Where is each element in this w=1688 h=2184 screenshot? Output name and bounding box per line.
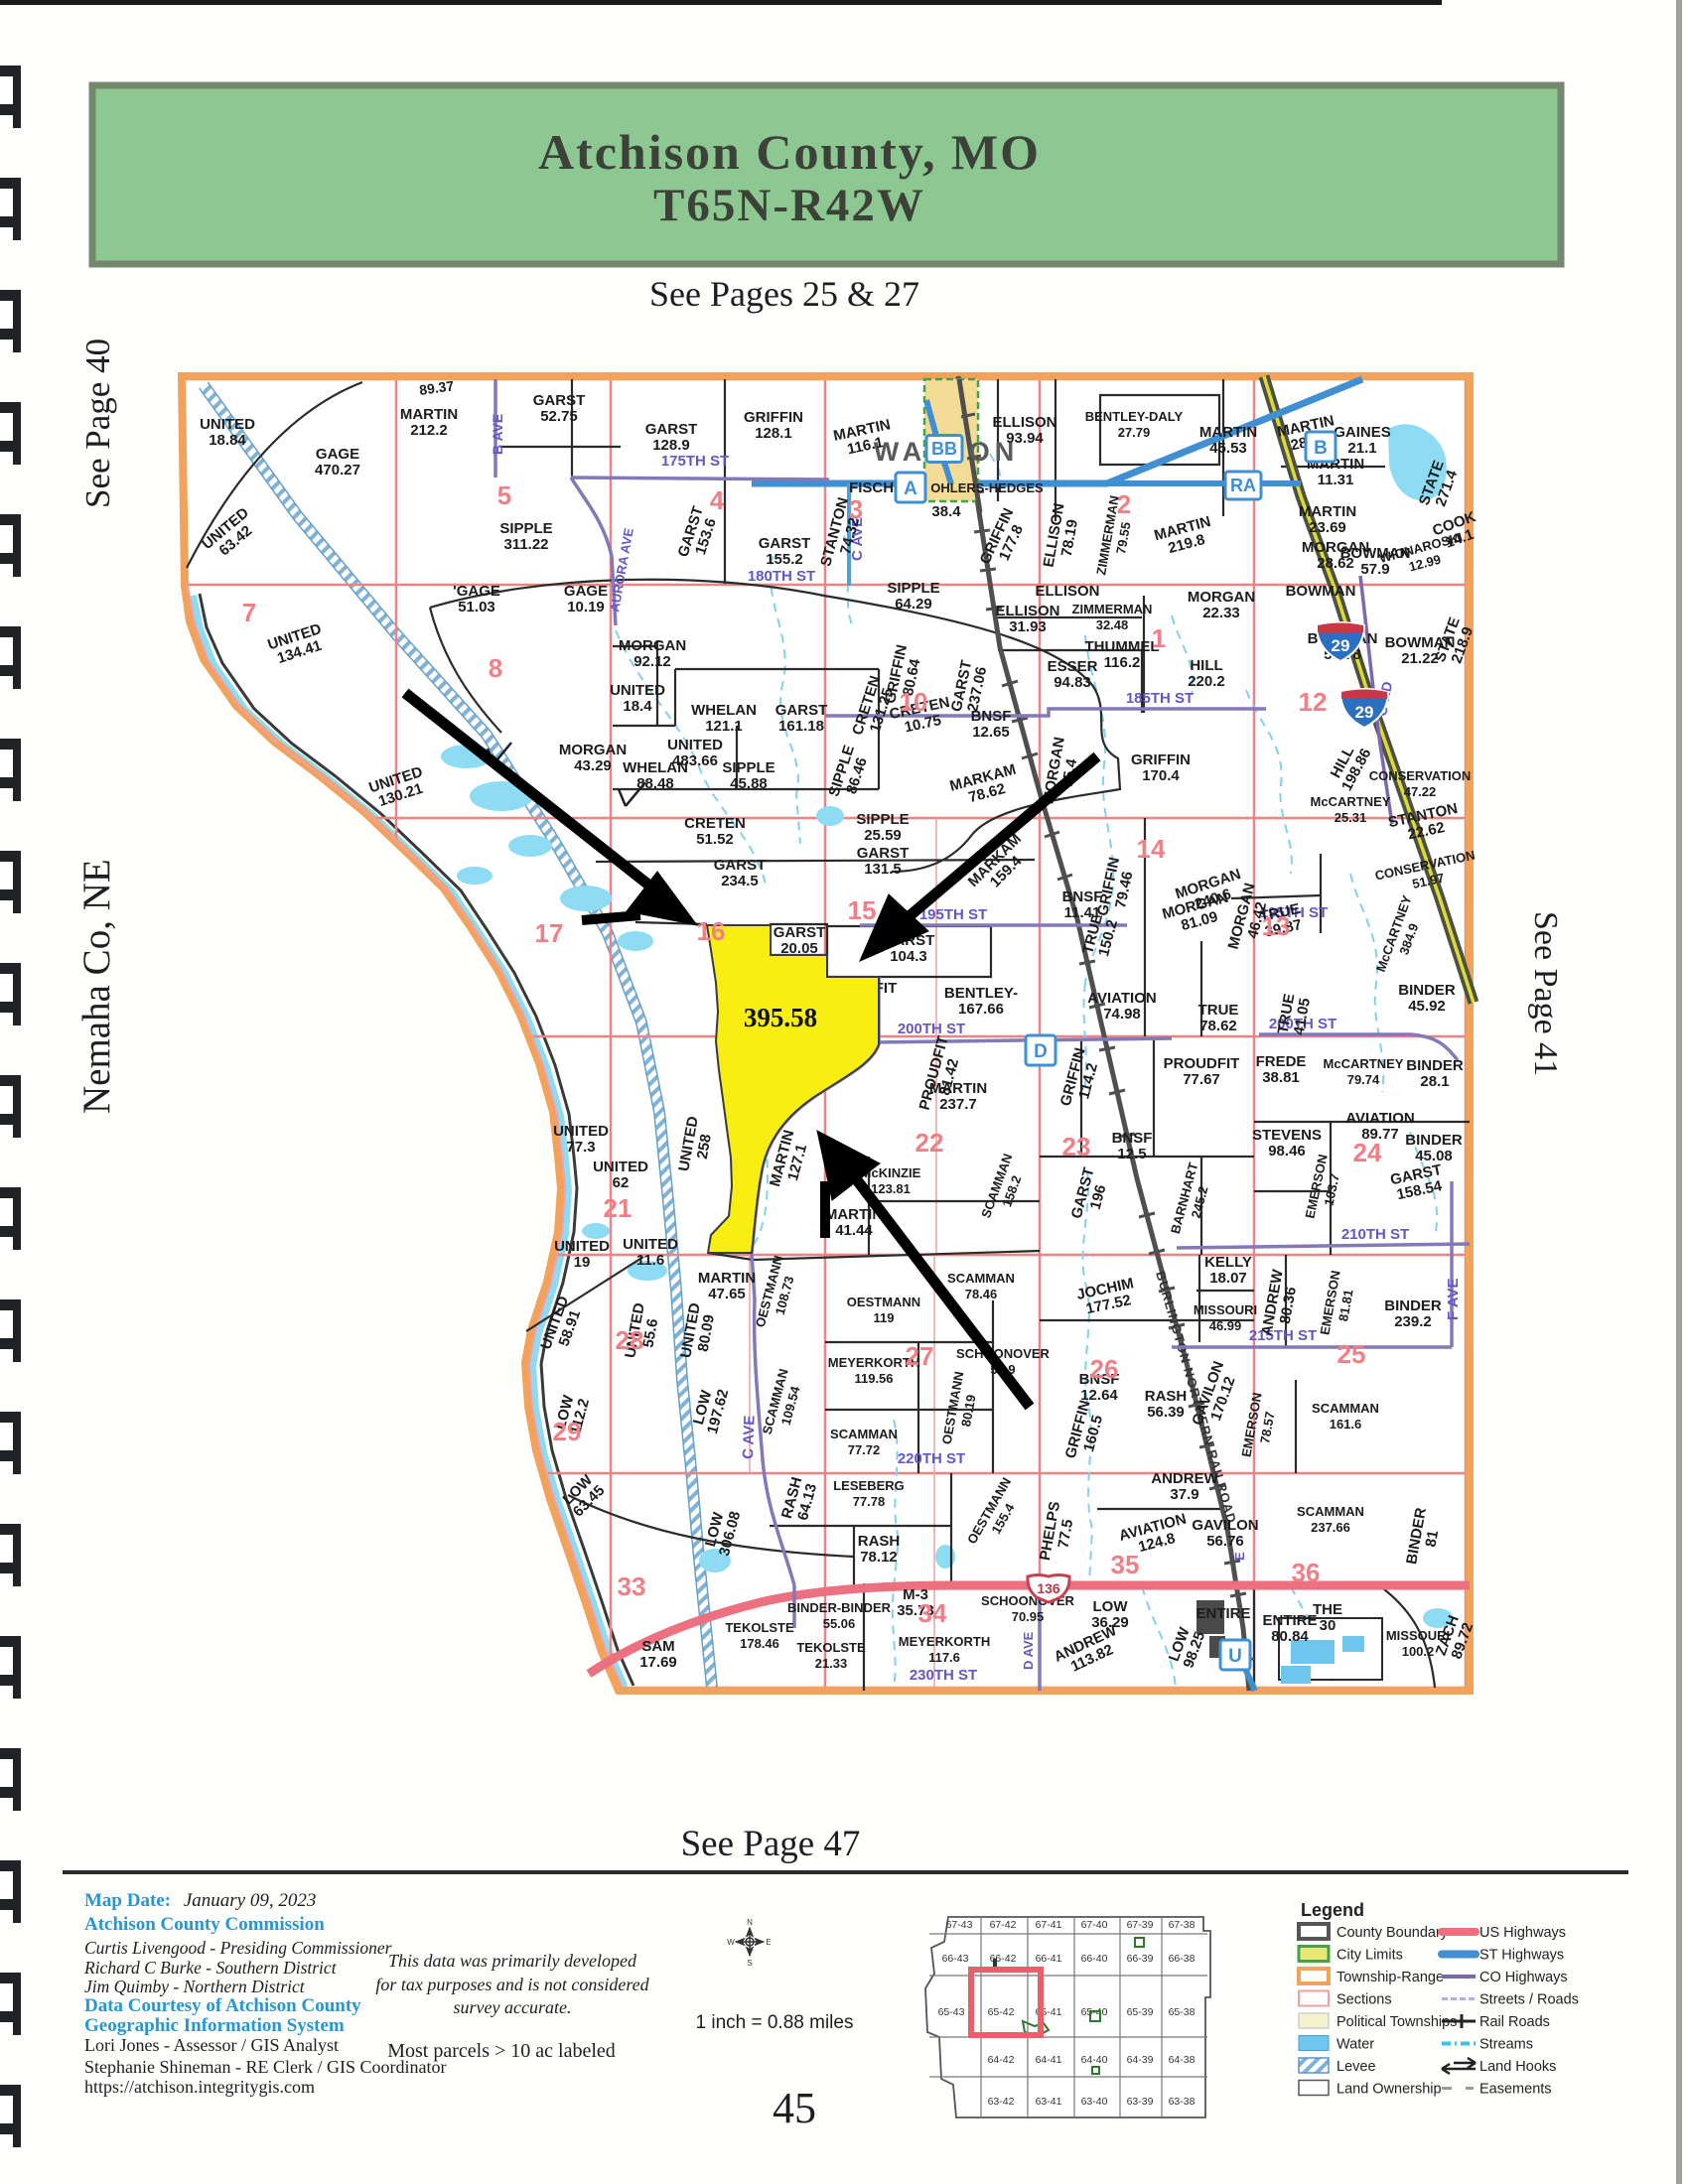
svg-text:64-40: 64-40 bbox=[1081, 2054, 1108, 2066]
svg-text:10: 10 bbox=[900, 687, 928, 717]
svg-text:B: B bbox=[1314, 438, 1328, 459]
svg-text:Water: Water bbox=[1336, 2037, 1374, 2053]
svg-text:'GAGE51.03: 'GAGE51.03 bbox=[453, 583, 500, 615]
svg-text:Land Ownership: Land Ownership bbox=[1336, 2082, 1442, 2098]
svg-text:SAM17.69: SAM17.69 bbox=[639, 1638, 677, 1671]
svg-text:GARST155.2: GARST155.2 bbox=[759, 535, 811, 568]
svg-text:Nemaha Co, NE: Nemaha Co, NE bbox=[75, 859, 118, 1114]
svg-text:67-39: 67-39 bbox=[1127, 1919, 1154, 1931]
svg-text:SIPPLE45.88: SIPPLE45.88 bbox=[722, 759, 774, 792]
svg-text:E: E bbox=[1232, 1552, 1247, 1561]
svg-text:GARST131.5: GARST131.5 bbox=[857, 845, 910, 878]
svg-text:24: 24 bbox=[1353, 1138, 1382, 1167]
svg-text:63-40: 63-40 bbox=[1081, 2096, 1108, 2108]
svg-text:BNSF12.5: BNSF12.5 bbox=[1112, 1130, 1153, 1162]
svg-text:W: W bbox=[727, 1938, 735, 1947]
svg-text:ELLISON: ELLISON bbox=[1035, 583, 1099, 600]
svg-text:29: 29 bbox=[1355, 703, 1374, 722]
svg-text:12: 12 bbox=[1299, 687, 1328, 717]
svg-text:230TH ST: 230TH ST bbox=[910, 1667, 977, 1684]
svg-text:36: 36 bbox=[1292, 1558, 1321, 1587]
svg-text:survey accurate.: survey accurate. bbox=[454, 1997, 572, 2017]
svg-text:County Boundary: County Boundary bbox=[1336, 1925, 1449, 1941]
svg-text:TRUE41.05: TRUE41.05 bbox=[1275, 993, 1315, 1038]
svg-text:185TH ST: 185TH ST bbox=[1126, 690, 1194, 707]
svg-text:67-42: 67-42 bbox=[990, 1919, 1017, 1931]
svg-text:180TH ST: 180TH ST bbox=[748, 568, 815, 585]
svg-text:210TH ST: 210TH ST bbox=[1341, 1226, 1409, 1243]
svg-text:See Pages 25 & 27: See Pages 25 & 27 bbox=[649, 274, 919, 314]
svg-text:BB: BB bbox=[931, 439, 957, 459]
svg-text:27: 27 bbox=[906, 1341, 934, 1371]
svg-text:66-39: 66-39 bbox=[1127, 1953, 1154, 1965]
svg-text:OHLERS-HEDGES: OHLERS-HEDGES bbox=[930, 480, 1044, 495]
svg-text:38.4: 38.4 bbox=[931, 503, 961, 520]
svg-text:Legend: Legend bbox=[1301, 1900, 1364, 1920]
svg-text:45: 45 bbox=[773, 2084, 816, 2132]
svg-text:Richard C Burke - Southern Dis: Richard C Burke - Southern District bbox=[83, 1958, 338, 1978]
svg-text:BNSF12.65: BNSF12.65 bbox=[971, 708, 1012, 741]
svg-text:Geographic Information System: Geographic Information System bbox=[84, 2015, 345, 2036]
svg-text:67-41: 67-41 bbox=[1036, 1919, 1062, 1931]
svg-text:CO Highways: CO Highways bbox=[1479, 1970, 1568, 1985]
svg-text:RASH56.39: RASH56.39 bbox=[1145, 1388, 1188, 1421]
svg-text:64-38: 64-38 bbox=[1169, 2054, 1196, 2066]
svg-text:Jim Quimby - Northern District: Jim Quimby - Northern District bbox=[84, 1977, 306, 1996]
svg-text:13: 13 bbox=[1262, 911, 1291, 941]
svg-text:Most parcels > 10 ac labeled: Most parcels > 10 ac labeled bbox=[387, 2040, 616, 2062]
svg-text:136: 136 bbox=[1037, 1580, 1060, 1596]
svg-text:City Limits: City Limits bbox=[1336, 1948, 1403, 1964]
svg-text:63-39: 63-39 bbox=[1127, 2096, 1154, 2108]
svg-text:GAGE10.19: GAGE10.19 bbox=[564, 583, 608, 615]
svg-text:63-41: 63-41 bbox=[1036, 2096, 1062, 2108]
svg-text:5: 5 bbox=[497, 480, 511, 510]
svg-text:2: 2 bbox=[1117, 489, 1131, 519]
svg-text:RA: RA bbox=[1230, 476, 1256, 495]
svg-text:RASH78.12: RASH78.12 bbox=[858, 1533, 901, 1566]
svg-text:35: 35 bbox=[1111, 1550, 1140, 1579]
svg-text:ENTIRE: ENTIRE bbox=[1196, 1605, 1250, 1622]
svg-text:63-38: 63-38 bbox=[1169, 2096, 1196, 2108]
svg-text:GAGE470.27: GAGE470.27 bbox=[315, 446, 360, 478]
svg-text:3: 3 bbox=[849, 494, 863, 524]
svg-text:Atchison County, MO: Atchison County, MO bbox=[538, 124, 1041, 180]
svg-text:64-41: 64-41 bbox=[1036, 2054, 1062, 2066]
svg-text:64-42: 64-42 bbox=[988, 2054, 1015, 2066]
svg-text:SIPPLE25.59: SIPPLE25.59 bbox=[856, 811, 909, 844]
svg-text:64-39: 64-39 bbox=[1127, 2054, 1154, 2066]
svg-text:KELLY18.07: KELLY18.07 bbox=[1204, 1254, 1252, 1287]
svg-text:14: 14 bbox=[1137, 834, 1166, 864]
svg-text:GARST52.75: GARST52.75 bbox=[533, 392, 586, 425]
svg-text:175TH ST: 175TH ST bbox=[661, 453, 729, 470]
svg-text:FREDE38.81: FREDE38.81 bbox=[1256, 1053, 1307, 1086]
svg-text:for tax purposes and is not co: for tax purposes and is not considered bbox=[375, 1975, 649, 1994]
svg-text:395.58: 395.58 bbox=[744, 1003, 817, 1032]
svg-text:21: 21 bbox=[604, 1193, 633, 1223]
svg-text:34: 34 bbox=[918, 1598, 947, 1628]
svg-text:See Page 40: See Page 40 bbox=[78, 339, 117, 508]
svg-text:66-41: 66-41 bbox=[1036, 1953, 1062, 1965]
svg-text:Levee: Levee bbox=[1336, 2059, 1376, 2075]
svg-text:C AVE: C AVE bbox=[740, 1415, 759, 1459]
svg-text:65-39: 65-39 bbox=[1127, 2006, 1154, 2018]
svg-text:TRUE78.62: TRUE78.62 bbox=[1198, 1002, 1239, 1034]
svg-text:66-40: 66-40 bbox=[1081, 1953, 1108, 1965]
svg-text:7: 7 bbox=[242, 598, 256, 627]
svg-text:17: 17 bbox=[535, 918, 564, 948]
svg-text:Sections: Sections bbox=[1336, 1992, 1392, 2008]
svg-text:F AVE: F AVE bbox=[1445, 1278, 1462, 1320]
svg-text:63-42: 63-42 bbox=[988, 2096, 1015, 2108]
svg-text:Streams: Streams bbox=[1479, 2037, 1533, 2053]
svg-text:SIPPLE311.22: SIPPLE311.22 bbox=[499, 520, 552, 553]
svg-text:65-43: 65-43 bbox=[938, 2006, 965, 2018]
svg-text:195TH ST: 195TH ST bbox=[919, 906, 987, 923]
svg-text:Lori Jones - Assessor / GIS An: Lori Jones - Assessor / GIS Analyst bbox=[84, 2035, 339, 2055]
svg-text:Data Courtesy of Atchison Coun: Data Courtesy of Atchison County bbox=[84, 1995, 361, 2016]
svg-text:200TH ST: 200TH ST bbox=[898, 1021, 965, 1037]
svg-text:8: 8 bbox=[489, 653, 502, 683]
svg-text:25: 25 bbox=[1337, 1339, 1366, 1369]
svg-text:E: E bbox=[766, 1938, 771, 1947]
svg-text:S: S bbox=[747, 1959, 752, 1968]
svg-text:28: 28 bbox=[616, 1325, 644, 1355]
svg-text:33: 33 bbox=[618, 1571, 646, 1601]
svg-text:23: 23 bbox=[1062, 1132, 1091, 1161]
svg-text:U: U bbox=[1228, 1646, 1242, 1667]
svg-text:1: 1 bbox=[1152, 623, 1166, 653]
svg-text:T65N-R42W: T65N-R42W bbox=[653, 180, 925, 231]
svg-text:GARST161.18: GARST161.18 bbox=[775, 702, 828, 735]
svg-text:67-43: 67-43 bbox=[946, 1919, 973, 1931]
svg-text:Streets / Roads: Streets / Roads bbox=[1479, 1992, 1579, 2008]
svg-text:https://atchison.integritygis.: https://atchison.integritygis.com bbox=[84, 2077, 315, 2097]
svg-text:GARST234.5: GARST234.5 bbox=[714, 857, 767, 889]
svg-text:ST Highways: ST Highways bbox=[1479, 1948, 1564, 1964]
svg-text:Atchison County Commission: Atchison County Commission bbox=[84, 1914, 325, 1935]
svg-text:BOWMAN: BOWMAN bbox=[1286, 583, 1356, 600]
svg-text:4: 4 bbox=[710, 485, 725, 515]
svg-text:B AVE: B AVE bbox=[490, 414, 505, 455]
svg-text:220TH ST: 220TH ST bbox=[898, 1450, 965, 1467]
svg-text:Curtis Livengood - Presiding C: Curtis Livengood - Presiding Commissione… bbox=[84, 1938, 392, 1958]
svg-text:GARST20.05: GARST20.05 bbox=[774, 924, 826, 957]
svg-text:16: 16 bbox=[697, 916, 726, 946]
svg-text:29: 29 bbox=[553, 1417, 582, 1446]
svg-text:1 inch = 0.88 miles: 1 inch = 0.88 miles bbox=[696, 2012, 854, 2033]
svg-text:See Page 47: See Page 47 bbox=[681, 1824, 861, 1864]
svg-text:65-38: 65-38 bbox=[1169, 2006, 1196, 2018]
svg-text:26: 26 bbox=[1090, 1354, 1119, 1384]
svg-text:66-38: 66-38 bbox=[1169, 1953, 1196, 1965]
svg-text:D: D bbox=[1034, 1041, 1048, 1062]
svg-text:A: A bbox=[904, 478, 917, 499]
svg-text:Rail Roads: Rail Roads bbox=[1479, 2014, 1550, 2030]
svg-text:65-42: 65-42 bbox=[988, 2006, 1015, 2018]
svg-text:15: 15 bbox=[848, 895, 877, 925]
svg-text:HILL220.2: HILL220.2 bbox=[1188, 657, 1225, 690]
svg-text:67-40: 67-40 bbox=[1081, 1919, 1108, 1931]
svg-text:66-43: 66-43 bbox=[942, 1953, 969, 1965]
svg-text:Easements: Easements bbox=[1479, 2082, 1552, 2098]
svg-text:GARST128.9: GARST128.9 bbox=[645, 421, 698, 454]
svg-text:This data was primarily develo: This data was primarily developed bbox=[388, 1951, 637, 1971]
svg-text:Land Hooks: Land Hooks bbox=[1479, 2059, 1556, 2075]
svg-text:Township-Range: Township-Range bbox=[1336, 1970, 1444, 1985]
svg-text:Map Date: January 09, 2023: Map Date: January 09, 2023 bbox=[84, 1890, 316, 1911]
svg-text:67-38: 67-38 bbox=[1169, 1919, 1196, 1931]
svg-text:SIPPLE64.29: SIPPLE64.29 bbox=[887, 580, 939, 613]
svg-text:29: 29 bbox=[1332, 636, 1350, 655]
svg-text:Political Townships: Political Townships bbox=[1336, 2014, 1457, 2030]
svg-text:N: N bbox=[747, 1918, 753, 1927]
svg-text:22: 22 bbox=[915, 1128, 944, 1158]
svg-text:ESSER94.83: ESSER94.83 bbox=[1048, 658, 1098, 691]
svg-text:D AVE: D AVE bbox=[1021, 1631, 1036, 1670]
svg-text:US Highways: US Highways bbox=[1479, 1925, 1566, 1941]
svg-text:See Page 41: See Page 41 bbox=[1527, 911, 1564, 1076]
